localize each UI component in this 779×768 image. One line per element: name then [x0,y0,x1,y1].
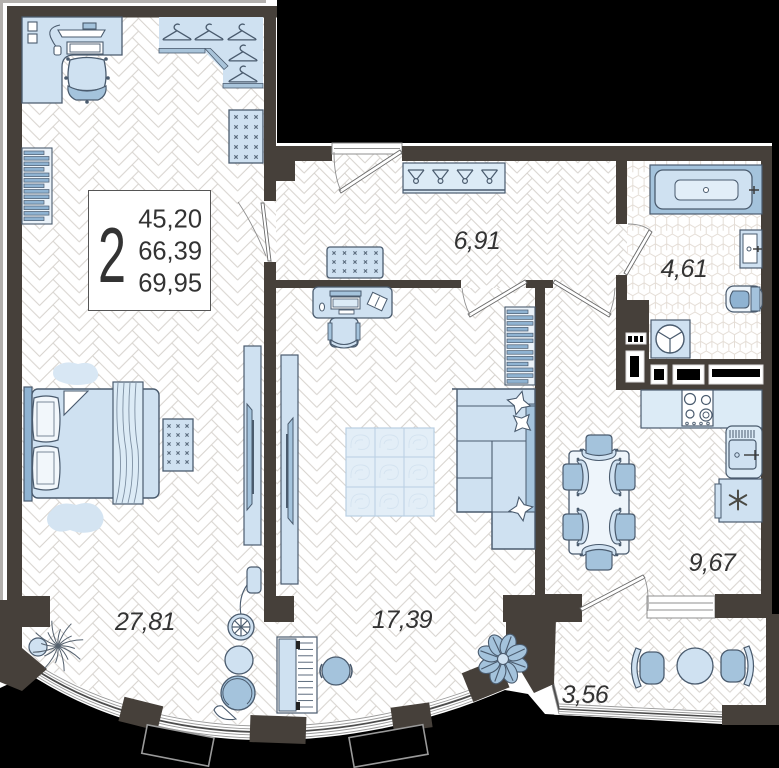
svg-text:66,39: 66,39 [138,238,202,266]
svg-text:45,20: 45,20 [138,206,202,234]
svg-text:6,91: 6,91 [454,227,501,255]
svg-text:69,95: 69,95 [138,270,202,298]
svg-text:3,56: 3,56 [562,681,609,709]
svg-text:4,61: 4,61 [661,255,708,283]
svg-text:27,81: 27,81 [114,608,175,636]
svg-text:17,39: 17,39 [372,606,433,634]
svg-text:2: 2 [98,211,126,299]
svg-text:9,67: 9,67 [689,549,737,577]
